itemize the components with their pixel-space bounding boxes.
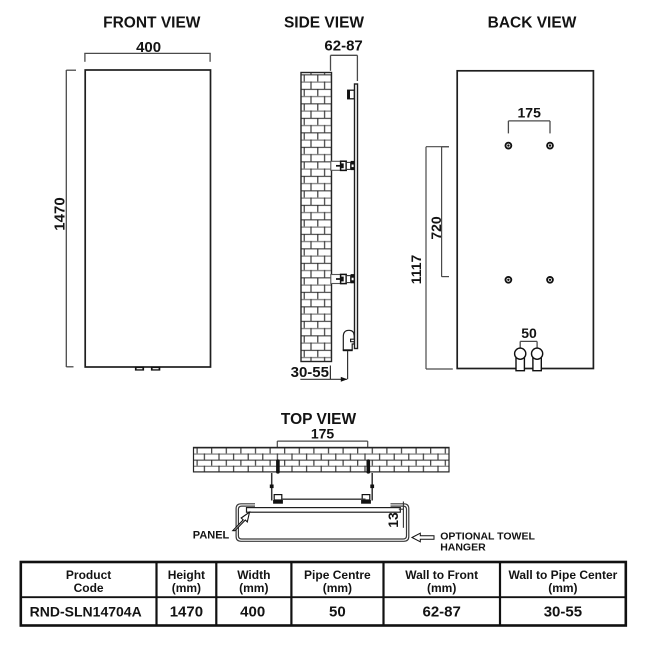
svg-text:Width: Width xyxy=(237,568,270,582)
svg-text:(mm): (mm) xyxy=(172,581,201,595)
svg-text:Height: Height xyxy=(168,568,205,582)
svg-text:400: 400 xyxy=(136,39,161,56)
svg-text:HANGER: HANGER xyxy=(440,542,486,554)
svg-text:(mm): (mm) xyxy=(239,581,268,595)
svg-text:PANEL: PANEL xyxy=(193,530,230,542)
svg-text:Product: Product xyxy=(66,568,111,582)
svg-text:BACK VIEW: BACK VIEW xyxy=(488,15,577,32)
svg-text:FRONT VIEW: FRONT VIEW xyxy=(103,15,201,32)
svg-text:13: 13 xyxy=(385,512,401,528)
svg-text:(mm): (mm) xyxy=(323,581,352,595)
svg-text:50: 50 xyxy=(329,604,346,621)
svg-text:400: 400 xyxy=(240,604,265,621)
svg-text:RND-SLN14704A: RND-SLN14704A xyxy=(30,604,142,620)
svg-text:30-55: 30-55 xyxy=(291,364,329,381)
svg-text:Pipe Centre: Pipe Centre xyxy=(304,568,371,582)
svg-text:62-87: 62-87 xyxy=(423,604,461,621)
svg-text:1470: 1470 xyxy=(170,604,203,621)
svg-text:50: 50 xyxy=(521,325,537,341)
svg-text:175: 175 xyxy=(311,425,335,441)
svg-text:Code: Code xyxy=(74,581,104,595)
svg-text:1470: 1470 xyxy=(52,197,69,230)
svg-text:(mm): (mm) xyxy=(427,581,456,595)
svg-text:Wall to Pipe Center: Wall to Pipe Center xyxy=(508,568,617,582)
svg-text:62-87: 62-87 xyxy=(324,38,362,55)
svg-text:30-55: 30-55 xyxy=(544,604,582,621)
svg-text:1117: 1117 xyxy=(408,254,424,284)
svg-text:Wall to Front: Wall to Front xyxy=(405,568,478,582)
svg-text:SIDE VIEW: SIDE VIEW xyxy=(284,15,364,32)
svg-text:720: 720 xyxy=(428,216,444,240)
svg-text:(mm): (mm) xyxy=(548,581,577,595)
svg-text:175: 175 xyxy=(518,104,542,120)
